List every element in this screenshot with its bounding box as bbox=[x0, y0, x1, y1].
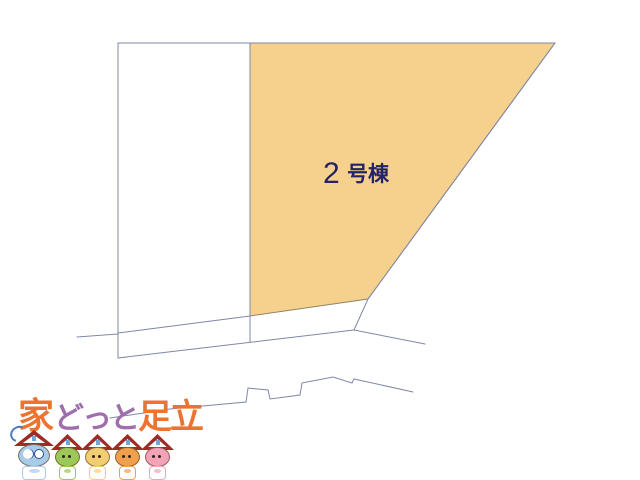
eyes-icon bbox=[98, 455, 101, 458]
mascot-green bbox=[51, 434, 84, 480]
glasses-icon bbox=[34, 449, 44, 459]
mascot-body bbox=[149, 466, 166, 480]
mascot-characters bbox=[14, 430, 171, 480]
eyes-icon bbox=[128, 455, 131, 458]
lot-number-label: 2 bbox=[323, 157, 340, 190]
lot-2-parcel bbox=[250, 43, 555, 316]
mascot-body bbox=[22, 466, 46, 480]
company-logo: 家 どっと 足立 bbox=[18, 398, 208, 434]
mascot-yellow bbox=[81, 434, 114, 480]
mascot-blue bbox=[14, 430, 54, 480]
road-edge-line bbox=[118, 330, 354, 358]
road-branch-line bbox=[354, 330, 425, 344]
eyes-icon bbox=[68, 455, 71, 458]
mascot-body bbox=[119, 466, 136, 480]
company-logo-text: 家 どっと 足立 bbox=[18, 398, 208, 434]
lot-suffix-label: 号棟 bbox=[347, 162, 390, 186]
mascot-body bbox=[59, 466, 76, 480]
mascot-body bbox=[89, 466, 106, 480]
left-stub-line bbox=[77, 334, 118, 337]
mascot-orange bbox=[111, 434, 144, 480]
brand-adachi-chars: 足立 bbox=[138, 400, 202, 434]
site-plan-page: 2 号棟 家 どっと 足立 bbox=[0, 0, 640, 480]
mascot-pink bbox=[141, 434, 174, 480]
eyes-icon bbox=[158, 455, 161, 458]
left-lot-bottom-line bbox=[118, 316, 250, 333]
